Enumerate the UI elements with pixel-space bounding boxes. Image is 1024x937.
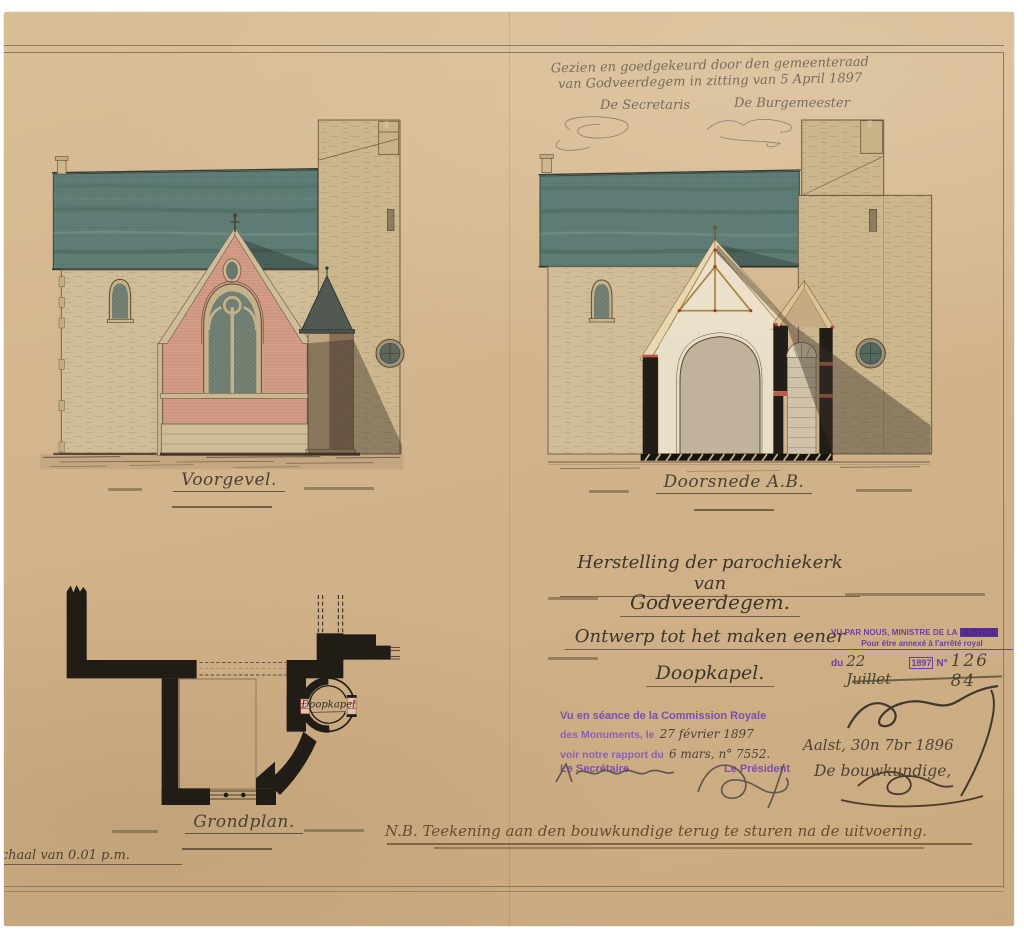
top-border-line	[4, 45, 1004, 46]
flourish	[172, 506, 272, 508]
tower-slit-window	[869, 209, 876, 231]
scanned-architectural-drawing: Doopkapel Gezien en goedgekeurd door den…	[0, 0, 1024, 937]
flourish	[112, 830, 158, 833]
approval-note: Gezien en goedgekeurd door den gemeenter…	[520, 54, 901, 94]
elevation-drawing	[20, 110, 440, 490]
tower-oculus-window	[376, 339, 404, 367]
bottom-border-line-inner	[4, 891, 1004, 892]
flourish	[548, 657, 598, 660]
plan-inner-face-line	[179, 679, 256, 789]
gothic-window	[201, 284, 264, 398]
architect-role: De bouwkundige,	[814, 762, 974, 780]
flourish	[589, 490, 629, 493]
plan-room-label: Doopkapel	[300, 700, 355, 711]
plan-drawing: Doopkapel	[40, 575, 400, 825]
chimney	[540, 155, 553, 173]
obscured-word: JUSTICE	[960, 628, 999, 637]
title-line-4: Doopkapel.	[560, 662, 860, 687]
footer-note: N.B. Teekening aan den bouwkundige terug…	[385, 822, 977, 840]
commission-signatures	[548, 752, 798, 810]
drawing-sheet: Doopkapel Gezien en goedgekeurd door den…	[4, 12, 1014, 926]
ground-hatch	[548, 454, 930, 471]
nave-roof-texture	[540, 171, 800, 268]
plan-room-label-underline	[311, 712, 346, 713]
plan-dashed-lines	[318, 595, 342, 633]
plan-walls	[67, 585, 391, 805]
tower-slit-window	[387, 209, 394, 230]
scale-note: Schaal van 0.01 p.m.	[4, 848, 182, 865]
ministry-stamp-line-2: Pour être annexé à l'arrêté royal	[831, 639, 1013, 650]
chimney	[55, 157, 68, 174]
footer-note-underline-2	[434, 847, 924, 849]
flourish	[304, 487, 374, 490]
flourish	[304, 829, 364, 832]
commission-line-2: des Monuments, le 27 février 1897	[560, 723, 808, 742]
top-border-line-inner	[4, 52, 1004, 53]
approval-signatures-overlap	[556, 117, 792, 151]
flourish	[856, 489, 912, 492]
flourish	[694, 509, 774, 511]
bottom-border-line	[4, 886, 1004, 887]
footer-note-underline	[387, 843, 972, 845]
paper-fold-line	[509, 12, 510, 925]
tower-oculus-window	[856, 339, 885, 368]
flourish	[845, 593, 985, 596]
section-drawing	[520, 110, 940, 490]
ground-line	[40, 453, 403, 470]
mayor-label: De Burgemeester	[734, 96, 850, 111]
entrance-steps	[208, 791, 256, 799]
title-line-2: Godveerdegem.	[560, 590, 860, 617]
flourish	[548, 597, 598, 600]
plan-wall-lines	[391, 648, 400, 659]
section-caption: Doorsnede A.B.	[614, 472, 854, 494]
plan-opening-dashes	[199, 662, 286, 675]
ministry-stamp-line-1: VU PAR NOUS, MINISTRE DE LA JUSTICE	[831, 628, 1013, 637]
gable-oval-window	[225, 261, 239, 281]
secretary-label: De Secretaris	[600, 98, 690, 113]
place-date: Aalst, 30n 7br 1896	[803, 736, 978, 754]
elevation-caption: Voorgevel.	[134, 470, 324, 492]
flourish	[182, 848, 272, 850]
flourish	[108, 488, 142, 491]
title-line-3: Ontwerp tot het maken eener	[560, 626, 860, 650]
commission-line-1: Vu en séance de la Commission Royale	[560, 710, 808, 722]
